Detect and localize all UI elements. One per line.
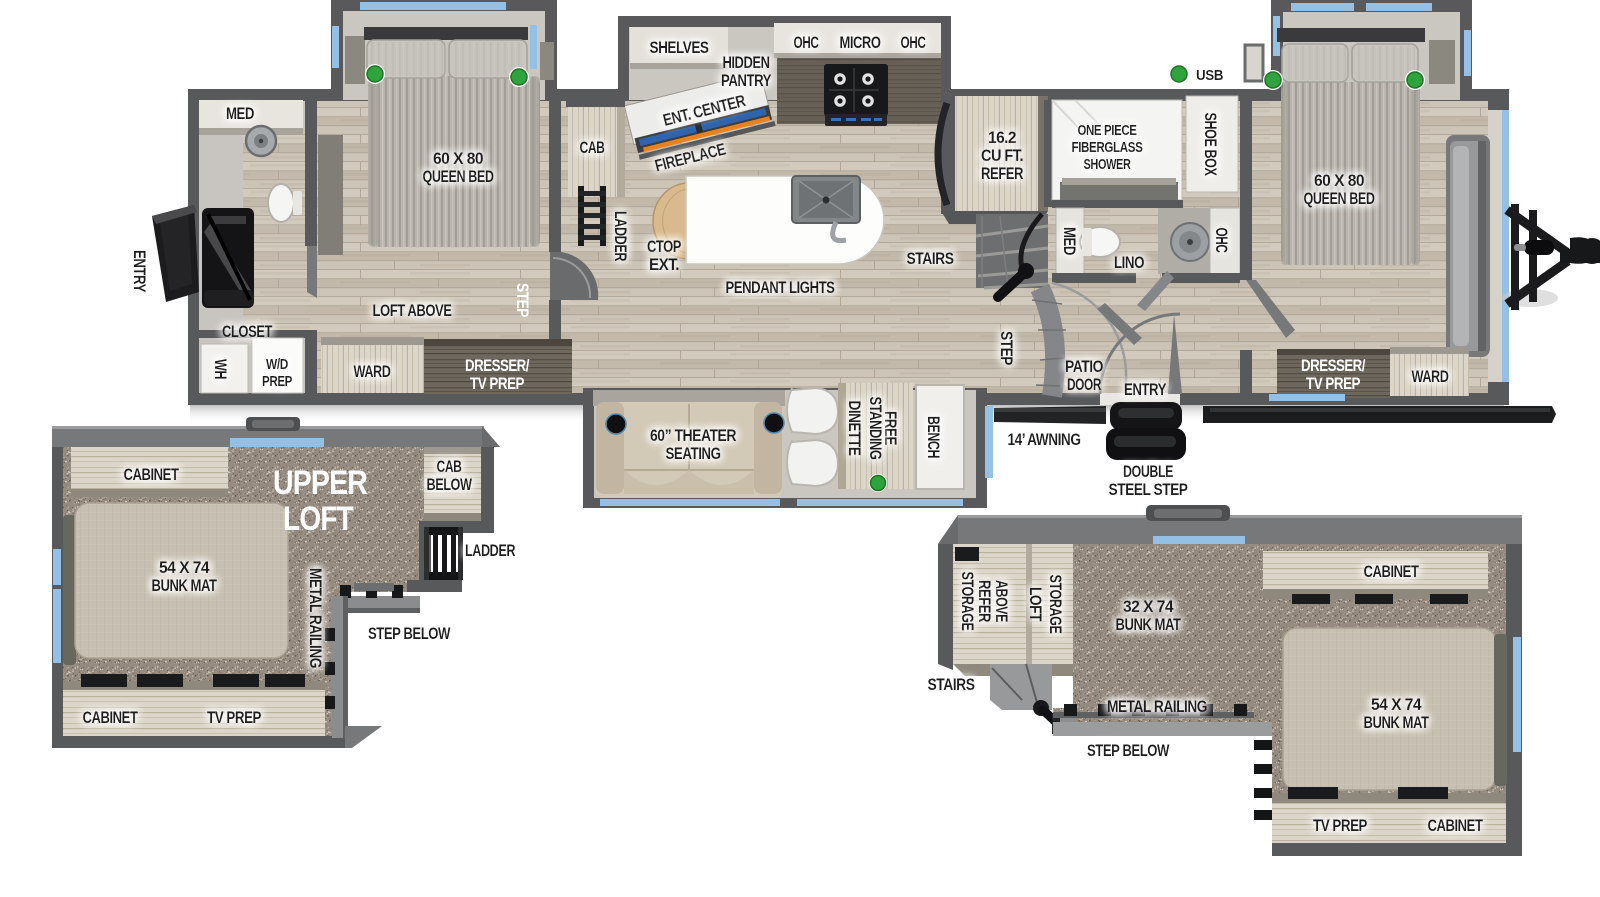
svg-text:TV PREP: TV PREP: [470, 374, 524, 393]
svg-text:FIBERGLASS: FIBERGLASS: [1072, 139, 1143, 156]
svg-text:STAIRS: STAIRS: [928, 675, 975, 694]
svg-text:54 X 74: 54 X 74: [1371, 695, 1422, 714]
svg-text:LINO: LINO: [1114, 253, 1144, 272]
svg-text:PANTRY: PANTRY: [721, 71, 772, 90]
svg-text:REFER: REFER: [981, 164, 1023, 183]
svg-text:USB: USB: [1196, 67, 1224, 84]
svg-text:CABINET: CABINET: [83, 708, 139, 727]
svg-text:BENCH: BENCH: [924, 416, 943, 458]
svg-text:DRESSER/: DRESSER/: [465, 356, 530, 375]
svg-text:CAB: CAB: [580, 138, 605, 157]
svg-text:CAB: CAB: [437, 457, 462, 476]
svg-text:60” THEATER: 60” THEATER: [650, 426, 736, 445]
svg-text:STORAGE: STORAGE: [958, 572, 977, 631]
svg-text:PENDANT LIGHTS: PENDANT LIGHTS: [726, 278, 835, 297]
svg-text:QUEEN BED: QUEEN BED: [423, 167, 494, 186]
svg-text:SHELVES: SHELVES: [650, 38, 709, 57]
svg-text:60 X 80: 60 X 80: [433, 149, 483, 168]
svg-text:BUNK MAT: BUNK MAT: [1116, 615, 1182, 634]
svg-text:BUNK MAT: BUNK MAT: [1364, 713, 1430, 732]
svg-text:CABINET: CABINET: [1428, 816, 1484, 835]
svg-text:LOFT: LOFT: [1026, 587, 1045, 622]
svg-text:60 X 80: 60 X 80: [1314, 171, 1364, 190]
svg-text:CABINET: CABINET: [1364, 562, 1420, 581]
svg-text:TV PREP: TV PREP: [207, 708, 261, 727]
svg-text:SHOE BOX: SHOE BOX: [1201, 113, 1220, 177]
svg-text:CABINET: CABINET: [124, 465, 180, 484]
svg-text:16.2: 16.2: [988, 128, 1016, 147]
svg-text:WARD: WARD: [354, 362, 391, 381]
svg-text:BUNK MAT: BUNK MAT: [152, 576, 218, 595]
svg-text:ENTRY: ENTRY: [130, 250, 149, 293]
svg-text:32 X 74: 32 X 74: [1123, 597, 1174, 616]
svg-text:PREP: PREP: [262, 373, 292, 390]
svg-text:OHC: OHC: [901, 33, 926, 52]
svg-text:STORAGE: STORAGE: [1046, 575, 1065, 634]
svg-text:HIDDEN: HIDDEN: [723, 53, 770, 72]
svg-text:W/D: W/D: [266, 356, 289, 373]
svg-text:TV PREP: TV PREP: [1313, 816, 1367, 835]
svg-text:ONE PIECE: ONE PIECE: [1078, 122, 1137, 139]
svg-text:STEEL STEP: STEEL STEP: [1109, 480, 1188, 499]
svg-text:EXT.: EXT.: [649, 255, 679, 274]
svg-text:TV PREP: TV PREP: [1306, 374, 1360, 393]
svg-text:WARD: WARD: [1412, 367, 1449, 386]
svg-text:LOFT ABOVE: LOFT ABOVE: [373, 301, 452, 320]
svg-text:STEP: STEP: [997, 331, 1016, 365]
svg-text:CTOP: CTOP: [647, 237, 681, 256]
svg-text:UPPER: UPPER: [273, 464, 367, 502]
svg-text:DOOR: DOOR: [1067, 375, 1101, 394]
svg-text:MICRO: MICRO: [840, 33, 881, 52]
svg-text:BELOW: BELOW: [427, 475, 473, 494]
svg-text:SHOWER: SHOWER: [1084, 156, 1131, 173]
svg-text:MED: MED: [1060, 227, 1079, 255]
svg-text:PATIO: PATIO: [1065, 357, 1103, 376]
svg-text:CU FT.: CU FT.: [981, 146, 1023, 165]
svg-text:METAL RAILING: METAL RAILING: [1107, 697, 1207, 716]
svg-text:DRESSER/: DRESSER/: [1301, 356, 1366, 375]
svg-text:LOFT: LOFT: [283, 500, 354, 538]
svg-text:DINETTE: DINETTE: [845, 401, 864, 456]
svg-text:STAIRS: STAIRS: [907, 249, 954, 268]
svg-text:LADDER: LADDER: [611, 211, 630, 261]
svg-text:QUEEN BED: QUEEN BED: [1304, 189, 1375, 208]
svg-text:ENTRY: ENTRY: [1124, 380, 1167, 399]
svg-text:STEP: STEP: [513, 283, 532, 317]
svg-text:METAL RAILING: METAL RAILING: [306, 568, 325, 668]
svg-text:OHC: OHC: [794, 33, 819, 52]
svg-text:CLOSET: CLOSET: [222, 322, 273, 341]
svg-text:DOUBLE: DOUBLE: [1123, 462, 1173, 481]
svg-text:MED: MED: [226, 104, 254, 123]
svg-text:14’ AWNING: 14’ AWNING: [1008, 430, 1081, 449]
svg-text:54 X 74: 54 X 74: [159, 558, 210, 577]
svg-text:OHC: OHC: [1212, 228, 1231, 253]
svg-text:LADDER: LADDER: [465, 541, 515, 560]
svg-text:STEP BELOW: STEP BELOW: [1087, 741, 1170, 760]
svg-text:SEATING: SEATING: [666, 444, 721, 463]
svg-text:STEP BELOW: STEP BELOW: [368, 624, 451, 643]
svg-text:STANDING: STANDING: [866, 397, 885, 460]
svg-text:WH: WH: [211, 359, 230, 379]
